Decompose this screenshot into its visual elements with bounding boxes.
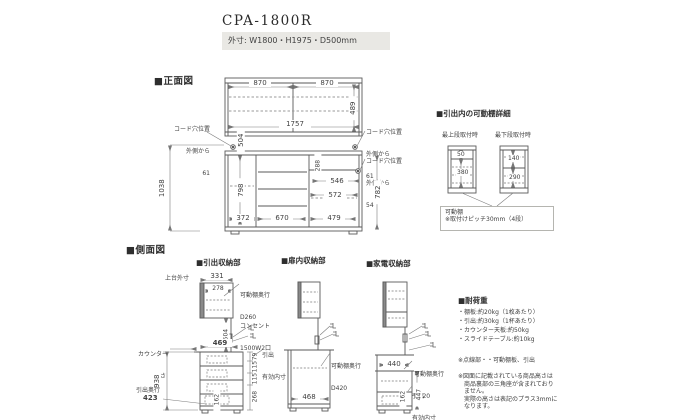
door-unit-title: ■扉内収納部 xyxy=(281,256,326,265)
dim-331: 331 xyxy=(206,272,228,280)
outlet-note-line1: コンセント xyxy=(240,323,271,330)
dim-469: 469 xyxy=(208,339,232,347)
cord-hole-right-bottom-note: コード穴位置 外側から 54 xyxy=(366,144,402,223)
outer-dimensions-box: 外寸: W1800・H1975・D500mm xyxy=(222,32,390,50)
drawer-unit-title: ■引出収納部 xyxy=(196,258,241,267)
load-item-drawer: ・引出:約30kg（1杯あたり） xyxy=(458,318,539,325)
cord-rt-line1: コード穴位置 xyxy=(366,129,402,136)
counter-height-line1: カウンター xyxy=(138,351,166,358)
caption-top-position: 最上段取付時 xyxy=(442,132,478,139)
load-item-counter: ・カウンター天板:約50kg xyxy=(458,327,529,334)
dim-278: 278 xyxy=(208,285,228,292)
dim-1038: 1038 xyxy=(158,176,166,200)
dim-380: 380 xyxy=(456,169,469,176)
front-view-drawing xyxy=(225,78,362,234)
dim-162-appliance: 162 xyxy=(399,385,406,409)
dim-162-drawer: 162 xyxy=(213,388,220,412)
cord-left-line1: コード穴位置 xyxy=(170,126,210,133)
shelf-detail-title: ■引出内の可動棚詳細 xyxy=(436,109,511,118)
dim-870-left: 870 xyxy=(249,79,271,87)
caption-bottom-position: 最下段取付時 xyxy=(495,132,531,139)
dim-268: 268 xyxy=(251,386,258,408)
shelf-depth-d420-ap-line1: 可動棚奥行 xyxy=(414,371,444,378)
furniture-spec-sheet: CPA-1800R 外寸: W1800・H1975・D500mm ■正面図 87… xyxy=(0,0,680,420)
appliance-inner-line2: 有効内寸 xyxy=(412,415,436,420)
drawer-inner-note: 引出 有効内寸 xyxy=(262,338,286,396)
appliance-unit-title: ■家電収納部 xyxy=(366,259,411,268)
shelf-depth-d420-door-line1: 可動棚奥行 xyxy=(331,363,361,370)
dim-1757: 1757 xyxy=(279,120,311,128)
load-capacity-title: ■耐荷重 xyxy=(458,296,488,305)
note-line2: ※取付けピッチ30mm（4段） xyxy=(445,216,553,223)
cord-left-line2: 外側から xyxy=(170,148,210,155)
dim-372: 372 xyxy=(232,214,254,222)
dim-50: 50 xyxy=(456,151,466,158)
load-item-shelf: ・棚板:約20kg（1枚あたり） xyxy=(458,309,539,316)
dim-140: 140 xyxy=(507,155,520,162)
dim-546: 546 xyxy=(326,177,348,185)
cord-rb-line1: コード穴位置 xyxy=(366,158,402,165)
dim-423: 423 xyxy=(143,394,158,402)
dim-479: 479 xyxy=(323,214,345,222)
shelf-depth-d420-note-door: 可動棚奥行 D420 xyxy=(331,349,361,407)
side-view-label: ■側面図 xyxy=(126,245,165,256)
dim-468: 468 xyxy=(298,393,320,401)
shelf-depth-d260-line1: 可動棚奥行 xyxy=(240,292,270,299)
movable-shelf-note-box: 可動棚 ※取付けピッチ30mm（4段） xyxy=(440,206,554,231)
dim-782: 782 xyxy=(374,180,382,204)
dim-288: 288 xyxy=(314,154,321,178)
dim-440: 440 xyxy=(383,360,405,368)
height-note-line1: ※図面に記載されている商品高さは xyxy=(458,373,553,380)
cord-left-value: 61 xyxy=(170,170,210,177)
cord-rb-value: 54 xyxy=(366,202,402,209)
dim-572: 572 xyxy=(324,191,346,199)
dim-870-right: 870 xyxy=(316,79,338,87)
dim-798: 798 xyxy=(237,178,245,202)
front-view-label: ■正面図 xyxy=(154,76,193,87)
drawer-inner-line2: 有効内寸 xyxy=(262,374,286,381)
load-item-slide-table: ・スライドテーブル:約10kg xyxy=(458,336,535,343)
upper-unit-label: 上台外寸 xyxy=(165,275,189,282)
cord-hole-left-note: コード穴位置 外側から 61 xyxy=(170,112,210,191)
dim-670: 670 xyxy=(271,214,293,222)
dotted-line-note: ※点線部・・可動棚板、引出 xyxy=(458,357,535,364)
height-note-line3: ません。 xyxy=(458,388,488,395)
height-note-line5: なります。 xyxy=(458,403,493,410)
dim-489: 489 xyxy=(349,96,357,120)
side-door-unit-dimensions xyxy=(291,326,333,399)
dim-447: 447 xyxy=(415,383,422,407)
shelf-depth-d420-door-line2: D420 xyxy=(331,385,361,392)
dim-290: 290 xyxy=(508,174,521,181)
outer-dimensions-text: 外寸: W1800・H1975・D500mm xyxy=(228,36,357,46)
dim-504-front: 504 xyxy=(237,128,245,152)
cord-rb-line2: 外側から xyxy=(366,180,402,187)
drawer-inner-line1: 引出 xyxy=(262,352,286,359)
model-number: CPA-1800R xyxy=(222,13,313,29)
